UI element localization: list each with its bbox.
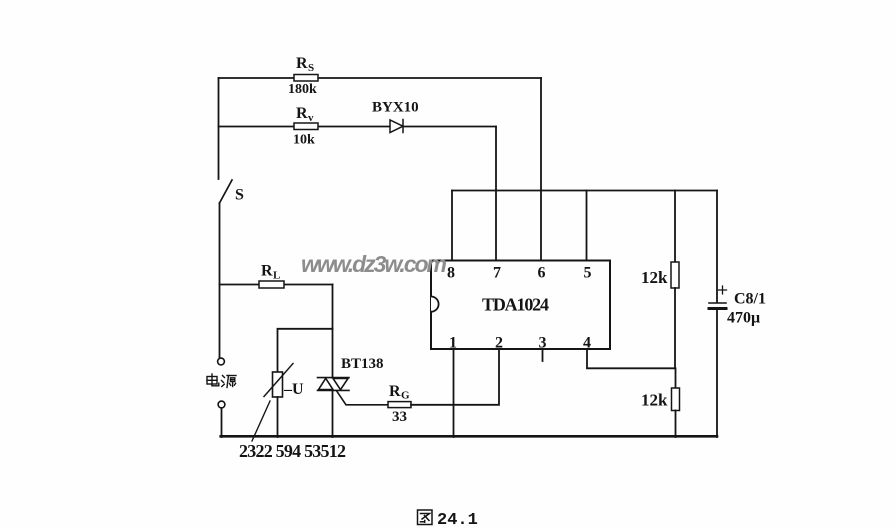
svg-text:S: S [235,187,244,204]
svg-text:S: S [308,62,314,74]
svg-text:v: v [308,112,314,124]
svg-text:470μ: 470μ [727,310,760,327]
svg-text:2322 594 53512: 2322 594 53512 [239,441,346,461]
svg-text:4: 4 [583,335,591,352]
svg-text:5: 5 [584,265,592,282]
svg-text:180k: 180k [288,82,317,97]
svg-text:BYX10: BYX10 [372,100,419,116]
svg-text:R: R [296,105,308,122]
svg-text:8: 8 [447,265,455,282]
svg-text:2: 2 [495,335,503,352]
svg-text:G: G [401,390,410,402]
svg-text:BT138: BT138 [341,356,384,372]
svg-text:3: 3 [539,335,547,352]
svg-text:TDA1024: TDA1024 [482,295,549,315]
svg-text:–U: –U [283,381,304,398]
svg-text:R: R [389,383,401,400]
svg-text:6: 6 [538,265,546,282]
svg-text:R: R [261,263,273,280]
svg-text:L: L [273,270,280,282]
svg-text:12k: 12k [641,268,668,287]
svg-text:C8/1: C8/1 [734,291,766,308]
svg-text:1: 1 [449,335,457,352]
svg-text:33: 33 [392,409,407,425]
svg-text:12k: 12k [641,391,668,410]
svg-text:www.dz3w.com: www.dz3w.com [301,251,447,277]
svg-text:10k: 10k [293,133,315,148]
svg-text:7: 7 [493,265,501,282]
svg-text:24.1: 24.1 [437,511,478,529]
svg-text:R: R [296,55,308,72]
